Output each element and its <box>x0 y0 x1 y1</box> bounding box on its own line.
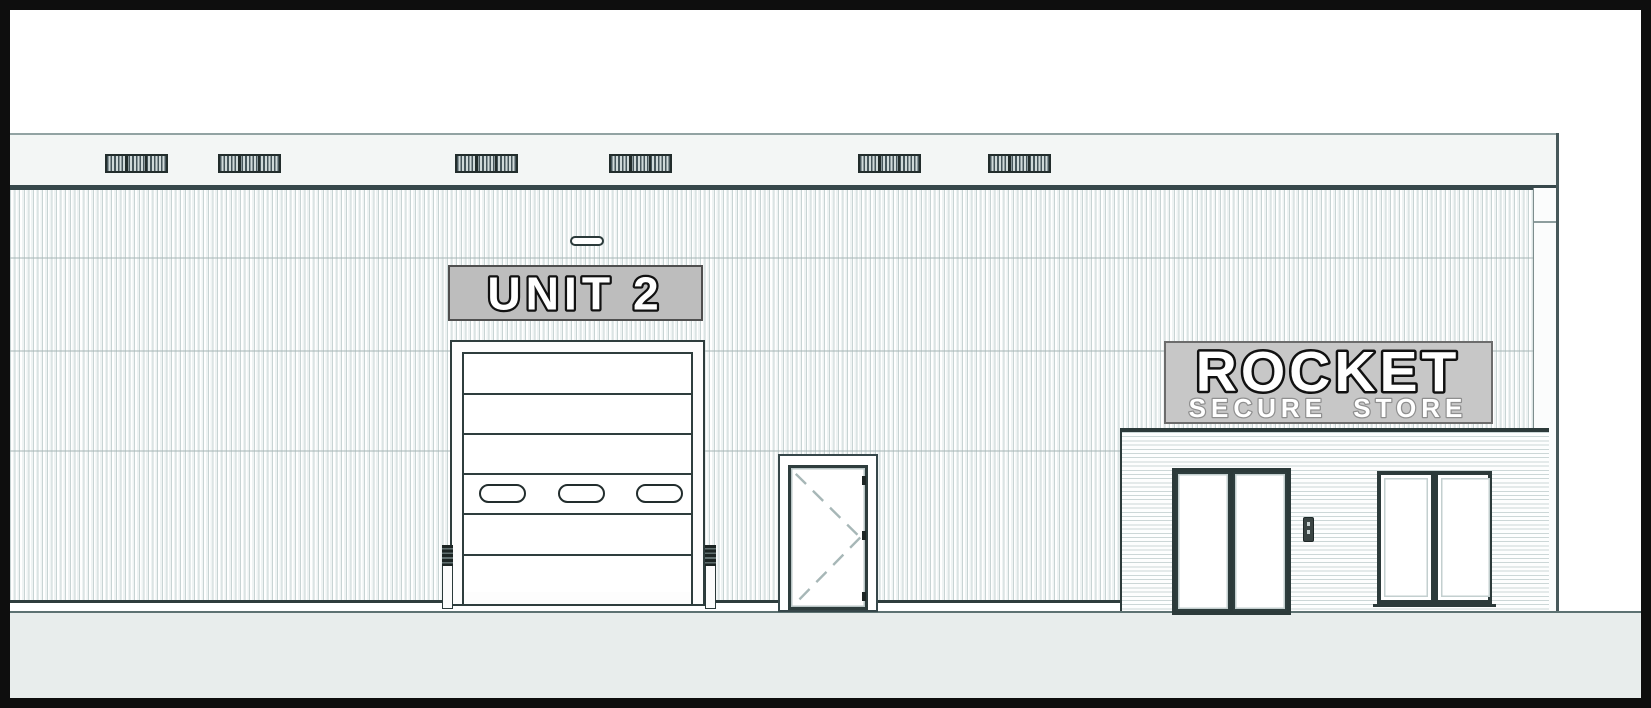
door-panel-with-windows <box>464 475 691 515</box>
shop-window <box>1377 471 1492 604</box>
cladding-joint-line <box>10 257 1533 259</box>
protection-bollard <box>442 545 453 609</box>
door-swing-lines-svg <box>791 468 865 607</box>
window-pane <box>1441 478 1490 597</box>
window-pane <box>1384 478 1428 597</box>
roller-door-panels <box>462 352 693 604</box>
rocket-sign-text-svg: ROCKET SECURE STORE <box>1166 343 1491 422</box>
store-tagline-text: SECURE STORE <box>1189 393 1468 422</box>
door-panel <box>464 395 691 435</box>
unit-2-sign-text-svg: UNIT 2 <box>450 267 701 319</box>
louver-vent <box>218 154 281 173</box>
personnel-door <box>778 454 878 612</box>
unit-sign-label: UNIT 2 <box>487 268 663 319</box>
vision-panel <box>636 484 683 503</box>
door-hinge <box>862 476 866 485</box>
building-corner-edge <box>1556 133 1559 611</box>
door-panel <box>464 515 691 556</box>
door-hinge <box>862 592 866 601</box>
wall-light-fixture <box>570 236 604 246</box>
personnel-door-leaf <box>788 465 868 610</box>
roller-shutter-door <box>450 340 705 606</box>
louver-vent <box>105 154 168 173</box>
double-door-leaf <box>1176 472 1230 611</box>
window-sill <box>1373 604 1496 607</box>
storefront-double-door <box>1172 468 1291 615</box>
rocket-store-signboard: ROCKET SECURE STORE <box>1164 341 1493 424</box>
louver-vent <box>609 154 672 173</box>
door-panel <box>464 556 691 592</box>
ground-surface <box>10 611 1641 700</box>
door-panel <box>464 435 691 475</box>
elevation-drawing: UNIT 2 <box>0 0 1651 708</box>
vision-panel <box>558 484 605 503</box>
vision-panel <box>479 484 526 503</box>
louver-vent <box>858 154 921 173</box>
door-hinge <box>862 531 866 540</box>
door-panel <box>464 354 691 395</box>
storefront-horizontal-cladding <box>1120 428 1549 611</box>
unit-2-signboard: UNIT 2 <box>448 265 703 321</box>
double-door-leaf <box>1233 472 1287 611</box>
window-mullion <box>1431 475 1438 600</box>
louver-vent <box>455 154 518 173</box>
access-keypad <box>1303 517 1314 542</box>
louver-vent <box>988 154 1051 173</box>
protection-bollard <box>705 545 716 609</box>
